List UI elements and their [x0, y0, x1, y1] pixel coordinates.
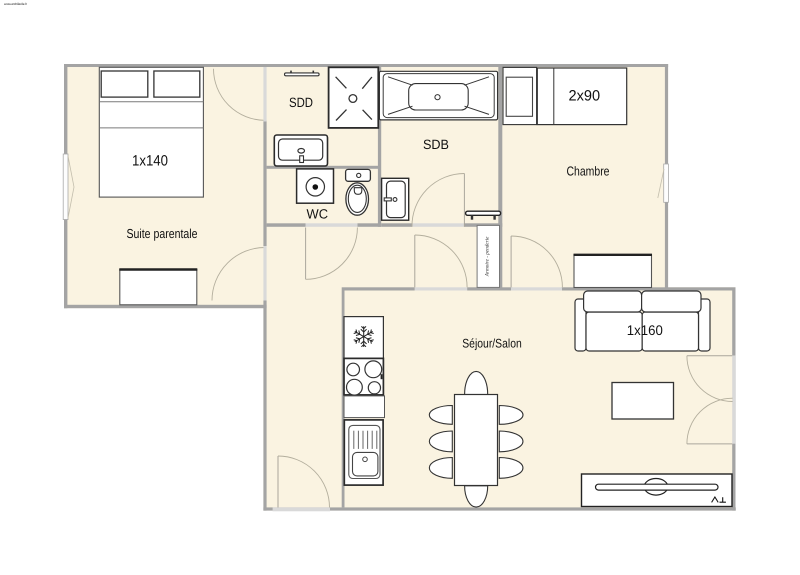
svg-text:www.archifacile.fr: www.archifacile.fr [4, 2, 28, 6]
svg-text:Armoire - penderie: Armoire - penderie [484, 236, 490, 277]
svg-text:1x140: 1x140 [132, 152, 168, 169]
svg-text:SDD: SDD [289, 95, 313, 110]
svg-text:Chambre: Chambre [567, 164, 610, 179]
svg-text:WC: WC [307, 206, 329, 221]
svg-text:Séjour/Salon: Séjour/Salon [462, 337, 522, 351]
svg-text:2x90: 2x90 [569, 87, 601, 104]
svg-text:Suite parentale: Suite parentale [127, 226, 198, 241]
svg-text:1x160: 1x160 [627, 322, 663, 338]
svg-text:SDB: SDB [423, 137, 449, 152]
